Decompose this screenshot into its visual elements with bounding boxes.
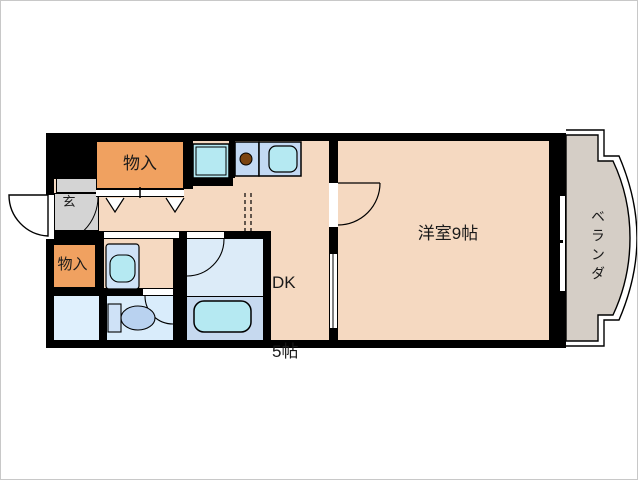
washbasin-bowl [110,255,135,282]
toilet-tank [108,304,121,332]
washer-pan-icon [193,144,229,178]
storage-left-label: 物入 [49,256,96,275]
folding-door-mark-left [106,198,124,212]
bathroom-door-arc [187,239,224,276]
western-room-label: 洋室9帖 [358,223,538,244]
bathtub-icon [194,301,251,332]
dk-label-line1: DK [272,271,332,294]
floorplan-canvas: 物入 物入 玄 DK 5帖 洋室9帖 ベランダ [0,0,638,480]
dk-label: DK 5帖 [272,225,332,409]
entrance-door-swing [9,195,48,236]
storage-top-label: 物入 [96,153,184,174]
veranda-window-tick [559,240,563,243]
veranda-label: ベランダ [584,195,606,299]
folding-door-mark-right [166,198,184,212]
kitchen-sink-icon [269,146,297,172]
dk-door-arc [338,183,380,225]
entrance-label: 玄 [59,194,79,210]
stove-burner-icon [240,153,252,165]
dk-label-line2: 5帖 [272,340,332,363]
toilet-icon [121,306,155,330]
